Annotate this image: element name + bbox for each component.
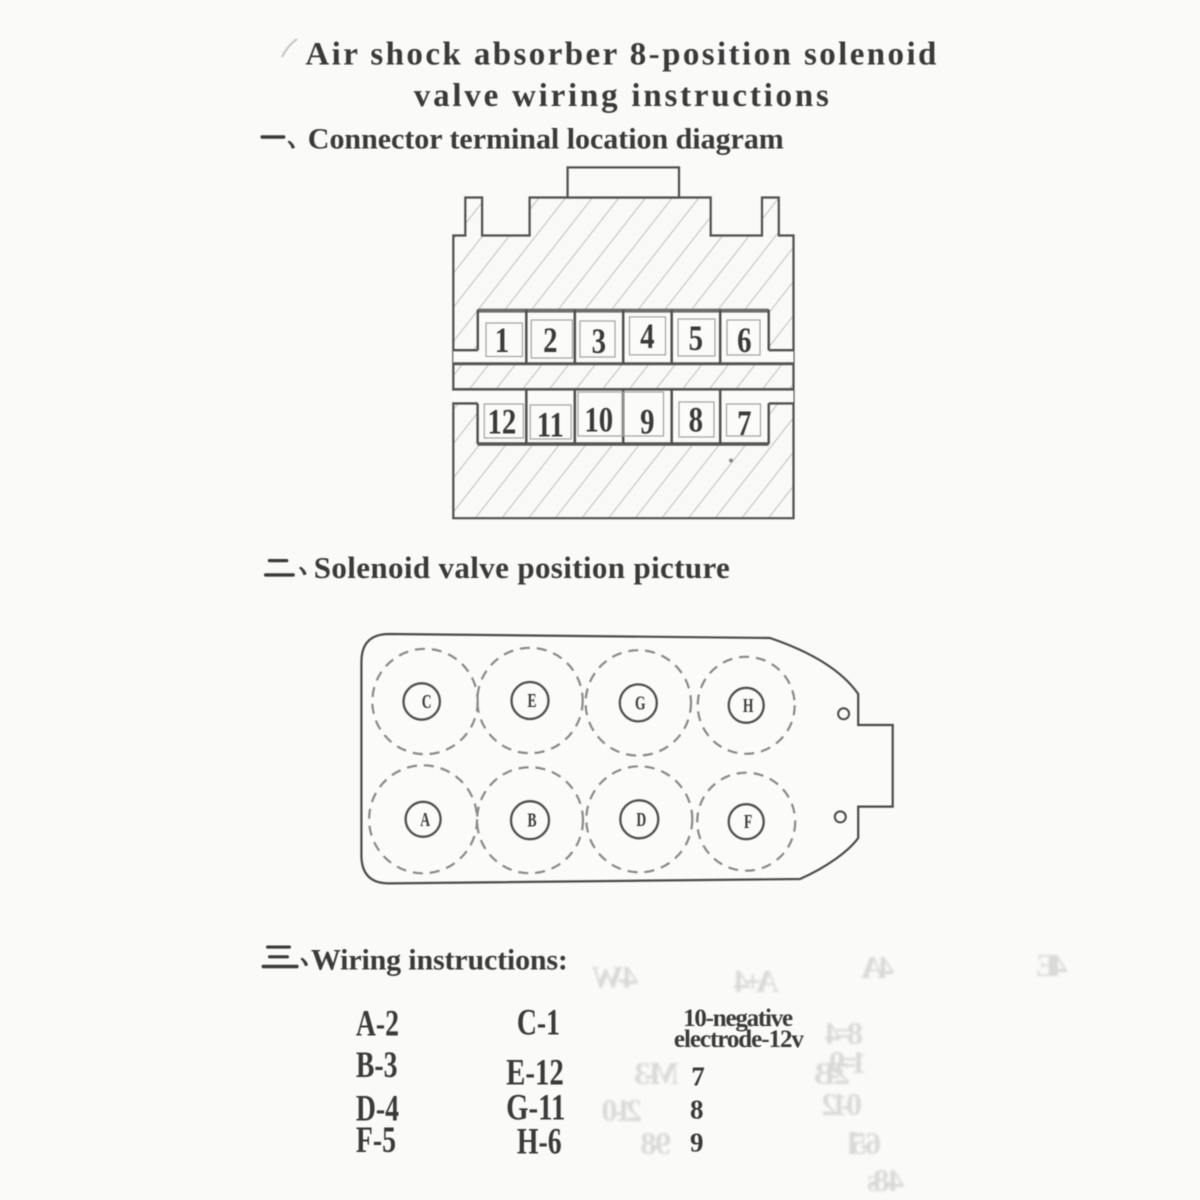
svg-text:F-5: F-5 (356, 1121, 396, 1162)
svg-text:4-W: 4-W (591, 959, 638, 995)
svg-text:7: 7 (737, 404, 751, 444)
svg-text:2: 2 (543, 321, 557, 361)
svg-text:G: G (635, 692, 646, 714)
svg-text:5: 5 (689, 319, 703, 359)
svg-text:H: H (743, 694, 754, 716)
svg-text:21-0: 21-0 (602, 1092, 642, 1128)
svg-text:4: 4 (640, 317, 654, 357)
svg-text:B: B (527, 809, 536, 831)
svg-text:0-12: 0-12 (822, 1086, 862, 1122)
svg-text:Connector terminal location di: Connector terminal location diagram (308, 123, 784, 156)
svg-text:D: D (636, 808, 646, 830)
svg-text:3: 3 (592, 322, 606, 362)
svg-text:A-2: A-2 (356, 1004, 399, 1045)
svg-text:8: 8 (689, 401, 703, 441)
svg-text:B-3: B-3 (356, 1045, 398, 1086)
svg-text:6: 6 (737, 321, 751, 361)
svg-text:A+4: A+4 (734, 963, 779, 999)
svg-text:E: E (527, 689, 536, 711)
svg-text:Solenoid valve position pictur: Solenoid valve position picture (314, 550, 730, 585)
svg-text:1=9: 1=9 (830, 1044, 867, 1080)
svg-text:valve wiring instructions: valve wiring instructions (414, 78, 829, 114)
svg-text:Wiring instructions:: Wiring instructions: (311, 943, 568, 976)
svg-text:7: 7 (691, 1061, 705, 1091)
svg-text:electrode-12v: electrode-12v (674, 1026, 805, 1053)
svg-text:A: A (420, 808, 430, 830)
svg-text:9: 9 (690, 1127, 704, 1157)
svg-text:C-1: C-1 (517, 1003, 560, 1044)
svg-text:8: 8 (690, 1094, 704, 1124)
svg-text:M-3: M-3 (635, 1055, 679, 1091)
svg-text:H-6: H-6 (517, 1122, 562, 1163)
svg-text:11: 11 (537, 406, 564, 446)
svg-text:12: 12 (488, 402, 517, 442)
svg-text:10: 10 (584, 401, 613, 441)
svg-text:F: F (744, 811, 752, 833)
svg-text:Air shock absorber 8-position: Air shock absorber 8-position solenoid (305, 37, 936, 73)
svg-text:1: 1 (495, 321, 509, 361)
svg-text:9: 9 (640, 402, 654, 442)
svg-text:C: C (422, 690, 432, 712)
